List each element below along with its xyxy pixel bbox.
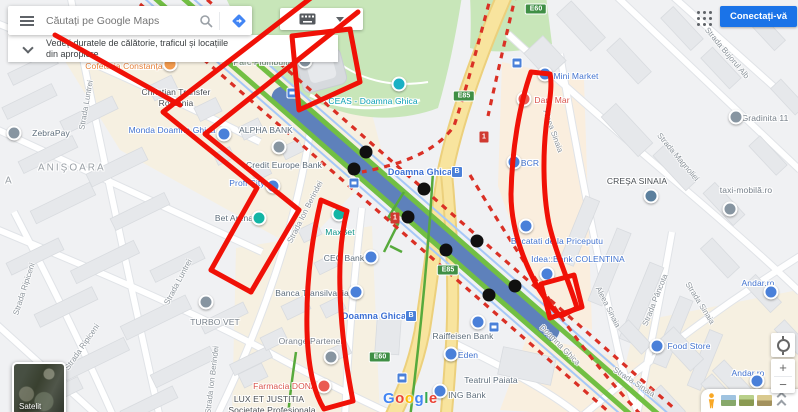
my-location-button[interactable] [771,333,795,357]
map-label-doamna-ghica[interactable]: Doamna Ghica [342,311,406,321]
chevron-down-icon [336,17,344,26]
street-label-strada-sinaia: Strada Sinaia [611,365,656,399]
map-label-food-store[interactable]: Food Store [667,341,710,351]
map-pin-cec-bank[interactable] [364,250,379,265]
map-label-cec-bank[interactable]: CEC Bank [324,253,364,263]
bus-stop-icon[interactable] [287,88,298,99]
google-maps-app: Parc PlumbuitaCofetăria ConstanțaChristi… [0,0,798,412]
street-label-strada-luntrei: Strada Luntrei [77,79,95,130]
zoom-controls: + − [771,359,795,393]
map-pin-dani-mar[interactable] [517,92,532,107]
map-label-a[interactable]: A [5,176,14,187]
map-pin-idea-bank-colentina[interactable] [540,267,555,282]
map-pin-farmacia-dona[interactable] [317,379,332,394]
map-label-raiffeisen-bank[interactable]: Raiffeisen Bank [433,331,494,341]
map-pin-food-store[interactable] [650,339,665,354]
map-pin-profi-city[interactable] [266,179,281,194]
map-label-doamna-ghica[interactable]: Doamna Ghica [388,167,452,177]
map-pin-cre-a-sinaia[interactable] [644,189,659,204]
street-label-strada-bujorul-alb: Strada Bujorul Alb [703,26,751,81]
map-label-taxi-mobil-ro[interactable]: taxi-mobilă.ro [720,185,772,195]
map-label-bet-arena[interactable]: Bet Arena [215,213,253,223]
route-stop-dot [440,244,453,257]
map-pin-zebrapay[interactable] [7,126,22,141]
bus-stop-icon[interactable] [512,58,523,69]
map-label-mini-market[interactable]: Mini Market [553,71,598,81]
route-stop-dot [360,146,373,159]
tram-line-badge: 1 [391,213,400,224]
road-badge-e60: E60 [369,352,391,363]
my-location-icon [777,339,790,352]
street-label-strada-ion-berindei: Strada Ion Berindei [203,345,220,412]
street-label-strada-luntrei: Strada Luntrei [162,258,194,307]
suggestion-line2: din apropiere [46,49,228,60]
map-pin-credit-europe-bank[interactable] [272,140,287,155]
map-pin-gradinita-11[interactable] [729,110,744,125]
map-pin-mini-market[interactable] [538,67,553,82]
satellite-layer-toggle[interactable]: Satelit [12,362,66,412]
map-pin-raiffeisen-bank[interactable] [471,315,486,330]
street-label-strada-ripiceni: Strada Ripiceni [63,322,101,372]
google-logo-letter: o [405,390,415,407]
route-stop-dot [418,183,431,196]
map-pin-bet-arena[interactable] [252,211,267,226]
street-label-strada-ripiceni: Strada Ripiceni [11,262,36,316]
collapse-icon[interactable] [778,393,785,408]
map-label-rom-nia[interactable]: România [159,98,194,108]
google-logo-letter: g [415,390,425,407]
map-pin-monda-doamna-ghica[interactable] [217,127,232,142]
road-badge-e85: E85 [437,265,459,276]
map-pin-orange-partener[interactable] [324,350,339,365]
zoom-in-button[interactable]: + [771,359,795,376]
road-badge-e85: E85 [453,91,475,102]
street-label-aleea-sinaia: Aleea Sinaia [541,108,565,153]
map-label-ing-bank[interactable]: ING Bank [448,390,486,400]
map-label-societate-profesionala[interactable]: Societate Profesionala [228,405,315,412]
map-label-teatrul-paiata[interactable]: Teatrul Paiata [464,375,517,385]
map-pin-maxbet[interactable] [332,207,347,222]
chevron-down-icon [22,42,33,53]
map-pin-turbo-vet[interactable] [199,295,214,310]
imagery-thumbnail[interactable] [721,395,736,406]
route-stop-dot [402,211,415,224]
google-logo-letter: o [395,390,405,407]
bus-stop-icon[interactable] [397,373,408,384]
map-label-bucatati-de-la-priceputu[interactable]: Bucatati de la Priceputu [511,236,603,246]
map-label-christian-transfer[interactable]: Christian Transfer [142,87,211,97]
map-pin-ceas-doamna-ghica[interactable] [392,77,407,92]
imagery-thumbnail[interactable] [739,395,754,406]
map-label-cre-a-sinaia[interactable]: CREŞA SINAIA [607,176,667,186]
map-pin-taxi-mobil-ro[interactable] [723,202,738,217]
street-label-strada-sinaia: Strada Sinaia [683,280,716,326]
google-logo-letter: G [383,390,395,407]
map-label-farmacia-dona[interactable]: Farmacia DONA [253,381,317,391]
map-label-gradinita-11[interactable]: Gradinita 11 [742,113,789,123]
map-pin-andar-ro[interactable] [750,374,765,389]
search-input[interactable] [44,14,199,28]
map-label-bcr[interactable]: BCR [521,158,539,168]
road-badge-e60: E60 [525,4,547,15]
map-label-monda-doamna-ghica[interactable]: Monda Doamna Ghica [129,125,216,135]
map-label-turbo-vet[interactable]: TURBO VET [190,317,240,327]
keyboard-icon [299,13,316,25]
google-logo-letter: e [429,390,438,407]
route-stop-dot [509,280,522,293]
map-label-ceas-doamna-ghica[interactable]: CEAS - Doamna Ghica [328,96,417,106]
map-label-dani-mar[interactable]: Dani Mar [534,95,569,105]
street-label-strada-p-ncota: Strada Pâncota [640,273,669,328]
map-label-profi-city[interactable]: Profi City [229,178,264,188]
imagery-thumbnail[interactable] [757,395,772,406]
map-label-idea-bank-colentina[interactable]: Idea::Bank COLENTINA [531,254,625,264]
map-label-zebrapay[interactable]: ZebraPay [32,128,70,138]
zoom-out-button[interactable]: − [771,377,795,394]
map-pin-eden[interactable] [444,347,459,362]
search-card [8,6,252,35]
map-label-alpha-bank[interactable]: ALPHA BANK [239,125,293,135]
map-pin-banca-transilvania[interactable] [349,285,364,300]
map-label-orange-partener[interactable]: Orange Partener [279,336,344,346]
map-label-maxbet[interactable]: MaxBet [325,227,354,237]
menu-icon[interactable] [20,16,34,26]
bus-stop-icon[interactable] [489,322,500,333]
search-icon[interactable] [199,14,213,28]
map-pin-bcr[interactable] [507,155,522,170]
map-label-lux-et-justitia[interactable]: LUX ET JUSTITIA [234,394,304,404]
map-label-eden[interactable]: Eden [458,350,478,360]
route-stop-dot [348,163,361,176]
pegman-icon[interactable] [707,392,716,410]
route-stop-dot [483,289,496,302]
street-label-aleea-sinaia: Aleea Sinaia [594,285,622,329]
map-label-cofet-ria-constan-a[interactable]: Cofetăria Constanța [85,61,163,71]
route-stop-dot [471,235,484,248]
map-pin-andar-ro[interactable] [764,285,779,300]
directions-icon[interactable] [226,13,252,29]
google-logo: Google [383,390,438,407]
street-label-strada-ion-berindei: Strada Ion Berindei [285,179,324,244]
map-label-credit-europe-bank[interactable]: Credit Europe Bank [246,160,322,170]
suggestion-line1: Vedeți duratele de călătorie, traficul ș… [46,38,228,49]
tram-line-badge: 1 [480,132,489,143]
google-apps-grid-icon[interactable] [696,10,712,26]
travel-times-suggestion[interactable]: Vedeți duratele de călătorie, traficul ș… [8,35,338,62]
divider [219,12,220,30]
map-label-ani-oara[interactable]: ANIŞOARA [38,163,106,174]
satellite-label: Satelit [19,402,41,411]
input-tools-button[interactable] [280,8,363,30]
sign-in-button[interactable]: Conectați-vă [720,6,797,27]
bus-stop-icon[interactable] [349,178,360,189]
map-pin-bucatati-de-la-priceputu[interactable] [519,219,534,234]
transit-station-icon[interactable]: B [451,166,463,178]
map-label-banca-transilvania[interactable]: Banca Transilvania [275,288,349,298]
transit-station-icon[interactable]: B [405,310,417,322]
street-label-doamna-ghica: Doamna Ghica [538,323,582,367]
